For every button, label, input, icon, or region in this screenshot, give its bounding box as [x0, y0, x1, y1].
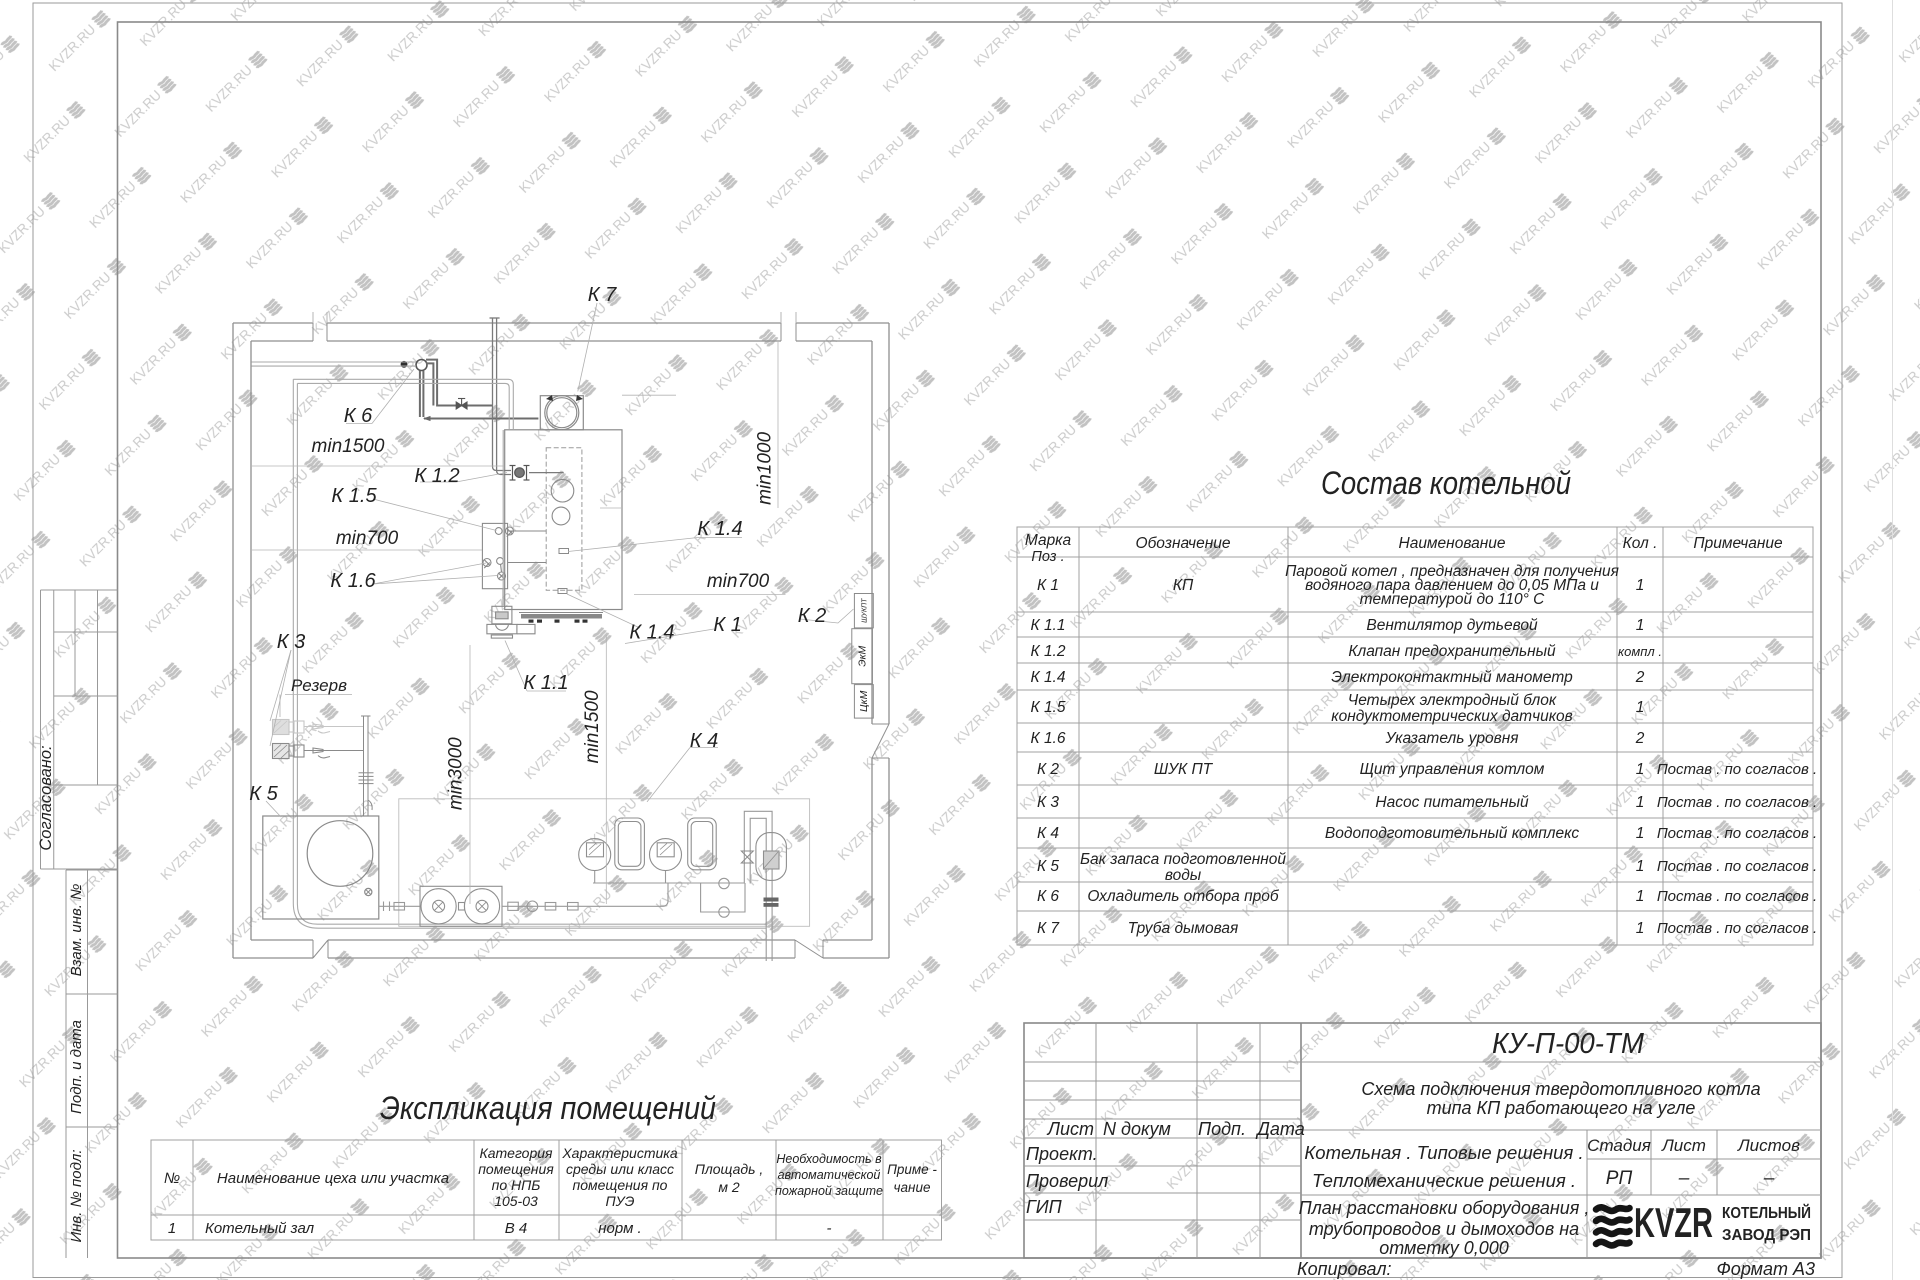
svg-text:К 5: К 5 [1037, 858, 1059, 875]
svg-text:Вентилятор дутьевой: Вентилятор дутьевой [1366, 617, 1538, 634]
svg-text:Согласовано:: Согласовано: [37, 745, 55, 850]
svg-text:1: 1 [1636, 577, 1645, 594]
svg-text:1: 1 [168, 1220, 176, 1237]
svg-text:К 1.5: К 1.5 [1031, 699, 1066, 716]
svg-text:Постав . по согласов .: Постав . по согласов . [1657, 920, 1817, 937]
svg-text:Подп. и дата: Подп. и дата [68, 1020, 85, 1114]
svg-text:Необходимость в: Необходимость в [776, 1152, 882, 1166]
svg-text:Категория: Категория [479, 1145, 553, 1161]
svg-text:К 5: К 5 [249, 783, 278, 805]
svg-text:по НПБ: по НПБ [492, 1177, 541, 1193]
svg-text:-: - [827, 1220, 832, 1237]
svg-text:Листов: Листов [1737, 1136, 1800, 1155]
svg-text:К 1.6: К 1.6 [330, 570, 376, 592]
svg-text:min1000: min1000 [754, 432, 775, 505]
svg-text:помещения по: помещения по [573, 1177, 668, 1193]
svg-text:кондуктометрических датчиков: кондуктометрических датчиков [1331, 708, 1573, 725]
svg-text:компл .: компл . [1618, 644, 1662, 659]
svg-text:Охладитель отбора проб: Охладитель отбора проб [1087, 888, 1279, 905]
svg-text:Труба дымовая: Труба дымовая [1128, 920, 1239, 937]
svg-text:2: 2 [1635, 669, 1645, 686]
svg-text:К 1.2: К 1.2 [1031, 643, 1066, 660]
svg-text:Площадь ,: Площадь , [695, 1161, 764, 1177]
svg-text:К 4: К 4 [690, 730, 718, 752]
svg-text:К 3: К 3 [1037, 794, 1059, 811]
svg-text:отметку 0,000: отметку 0,000 [1379, 1238, 1509, 1258]
svg-text:Проект.: Проект. [1026, 1144, 1098, 1164]
svg-text:Постав . по согласов .: Постав . по согласов . [1657, 858, 1817, 875]
svg-text:К 1: К 1 [1037, 577, 1059, 594]
svg-text:min1500: min1500 [312, 436, 385, 457]
svg-text:К 1: К 1 [713, 614, 741, 636]
svg-text:К 6: К 6 [1037, 888, 1059, 905]
svg-text:норм .: норм . [598, 1220, 641, 1237]
svg-text:К 1.1: К 1.1 [523, 672, 568, 694]
svg-text:Котельный зал: Котельный зал [205, 1220, 315, 1237]
svg-text:1: 1 [1636, 794, 1645, 811]
svg-text:Электроконтактный манометр: Электроконтактный манометр [1331, 669, 1573, 686]
svg-text:Схема подключения твердотопл: Схема подключения твердотопливного котла [1361, 1079, 1760, 1099]
svg-text:Постав . по согласов .: Постав . по согласов . [1657, 825, 1817, 842]
svg-text:К 1.4: К 1.4 [697, 518, 742, 540]
svg-text:КП: КП [1173, 577, 1194, 594]
svg-text:План расстановки оборудования: План расстановки оборудования , [1299, 1198, 1590, 1218]
svg-text:Лист: Лист [1047, 1119, 1094, 1139]
svg-text:Формат А3: Формат А3 [1717, 1259, 1816, 1279]
svg-text:РП: РП [1606, 1168, 1633, 1189]
svg-text:К 3: К 3 [277, 631, 305, 653]
svg-text:Поз .: Поз . [1031, 549, 1064, 565]
svg-text:Дата: Дата [1255, 1119, 1305, 1139]
svg-text:среды или класс: среды или класс [566, 1161, 674, 1177]
svg-text:температурой до 110° С: температурой до 110° С [1360, 591, 1546, 608]
svg-text:Инв. № подл:: Инв. № подл: [68, 1149, 85, 1242]
svg-text:Приме -: Приме - [887, 1162, 937, 1177]
svg-text:Наименование цеха или участка: Наименование цеха или участка [217, 1170, 449, 1187]
svg-text:Щит управления котлом: Щит управления котлом [1360, 761, 1545, 778]
svg-text:Копировал:: Копировал: [1297, 1259, 1392, 1279]
svg-text:1: 1 [1636, 888, 1645, 905]
svg-text:–: – [1678, 1168, 1690, 1189]
svg-text:Взам. инв. №: Взам. инв. № [68, 884, 85, 977]
svg-text:Постав . по согласов .: Постав . по согласов . [1657, 888, 1817, 905]
svg-text:–: – [1763, 1168, 1775, 1189]
svg-text:Резерв: Резерв [291, 676, 347, 695]
svg-text:Примечание: Примечание [1693, 535, 1783, 552]
svg-text:ШУКПТ: ШУКПТ [862, 598, 869, 623]
svg-text:Тепломеханические решения .: Тепломеханические решения . [1312, 1170, 1576, 1191]
svg-text:Клапан предохранительный: Клапан предохранительный [1348, 643, 1556, 660]
svg-text:N докум: N докум [1103, 1119, 1171, 1139]
svg-text:1: 1 [1636, 920, 1645, 937]
svg-text:Экспликация помещений: Экспликация помещений [380, 1090, 716, 1126]
svg-text:Четырех электродный блок: Четырех электродный блок [1348, 692, 1557, 709]
svg-text:К 1.4: К 1.4 [1031, 669, 1066, 686]
svg-text:Проверил: Проверил [1026, 1171, 1108, 1191]
svg-text:Постав . по согласов .: Постав . по согласов . [1657, 761, 1817, 778]
svg-text:К 4: К 4 [1037, 825, 1059, 842]
svg-text:КУ-П-00-ТМ: КУ-П-00-ТМ [1492, 1028, 1645, 1060]
svg-text:К 1.6: К 1.6 [1031, 730, 1066, 747]
svg-text:автоматической: автоматической [778, 1168, 881, 1182]
svg-text:К 1.1: К 1.1 [1031, 617, 1066, 634]
svg-text:Характеристика: Характеристика [561, 1145, 678, 1161]
svg-text:К 2: К 2 [798, 605, 826, 627]
svg-text:трубопроводов и дымоходов на: трубопроводов и дымоходов на [1309, 1219, 1579, 1239]
svg-text:Стадия: Стадия [1587, 1136, 1651, 1155]
svg-text:Указатель уровня: Указатель уровня [1384, 730, 1518, 747]
svg-text:ШУК ПТ: ШУК ПТ [1154, 761, 1214, 778]
svg-text:min1500: min1500 [582, 690, 603, 763]
svg-text:К 1.5: К 1.5 [331, 485, 377, 507]
svg-text:min700: min700 [336, 528, 399, 549]
svg-text:пожарной защите: пожарной защите [775, 1184, 883, 1198]
svg-text:1: 1 [1636, 761, 1645, 778]
svg-text:№: № [164, 1170, 180, 1187]
svg-text:ГИП: ГИП [1026, 1197, 1063, 1217]
svg-text:1: 1 [1636, 699, 1645, 716]
svg-text:min3000: min3000 [445, 737, 466, 810]
svg-text:Марка: Марка [1025, 532, 1072, 549]
svg-text:1: 1 [1636, 858, 1645, 875]
svg-text:помещения: помещения [478, 1161, 554, 1177]
svg-text:Водоподготовительный комплекс: Водоподготовительный комплекс [1325, 825, 1579, 842]
svg-text:воды: воды [1165, 867, 1202, 884]
svg-text:Лист: Лист [1661, 1136, 1706, 1155]
svg-text:ЗАВОД РЭП: ЗАВОД РЭП [1722, 1227, 1811, 1244]
svg-text:К 7: К 7 [588, 284, 617, 306]
svg-text:2: 2 [1635, 730, 1645, 747]
svg-text:Бак запаса подготовленной: Бак запаса подготовленной [1080, 851, 1286, 868]
svg-text:К 1.2: К 1.2 [414, 465, 459, 487]
svg-text:KVZR: KVZR [1634, 1199, 1713, 1246]
svg-text:Постав . по согласов .: Постав . по согласов . [1657, 794, 1817, 811]
svg-text:К 7: К 7 [1037, 920, 1060, 937]
svg-text:м 2: м 2 [718, 1179, 739, 1195]
svg-text:Наименование: Наименование [1399, 535, 1506, 552]
svg-text:Кол .: Кол . [1623, 535, 1658, 552]
svg-text:min700: min700 [707, 571, 770, 592]
svg-text:В 4: В 4 [505, 1220, 528, 1237]
svg-text:КОТЕЛЬНЫЙ: КОТЕЛЬНЫЙ [1722, 1203, 1811, 1222]
svg-text:Котельная . Типовые решения .: Котельная . Типовые решения . [1304, 1142, 1583, 1163]
svg-text:Подп.: Подп. [1198, 1119, 1246, 1139]
svg-text:Насос питательный: Насос питательный [1375, 794, 1529, 811]
svg-text:1: 1 [1636, 825, 1645, 842]
svg-text:Состав котельной: Состав котельной [1321, 465, 1571, 501]
svg-text:1: 1 [1636, 617, 1645, 634]
svg-text:К 6: К 6 [344, 405, 373, 427]
svg-text:ПУЭ: ПУЭ [606, 1193, 635, 1209]
svg-text:К 2: К 2 [1037, 761, 1059, 778]
svg-text:ЦкМ: ЦкМ [858, 690, 870, 712]
svg-text:К 1.4: К 1.4 [629, 622, 674, 644]
svg-text:типа КП работающего на угле: типа КП работающего на угле [1427, 1098, 1696, 1118]
svg-text:105-03: 105-03 [494, 1193, 538, 1209]
svg-text:ЭкМ: ЭкМ [856, 645, 868, 666]
svg-text:чание: чание [894, 1180, 931, 1195]
svg-text:Обозначение: Обозначение [1136, 535, 1231, 552]
